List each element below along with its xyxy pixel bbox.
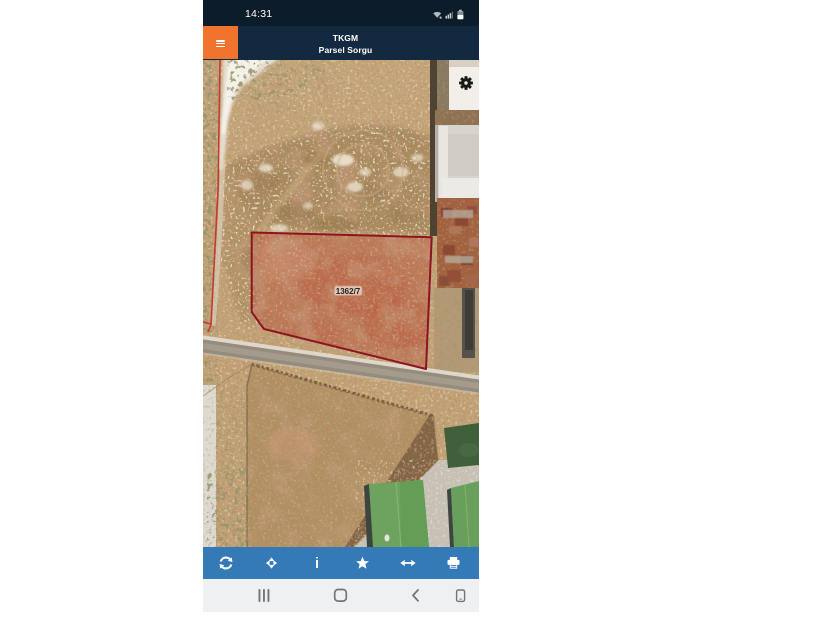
svg-text:1362/7: 1362/7 xyxy=(336,287,361,296)
svg-text:i: i xyxy=(315,556,319,572)
